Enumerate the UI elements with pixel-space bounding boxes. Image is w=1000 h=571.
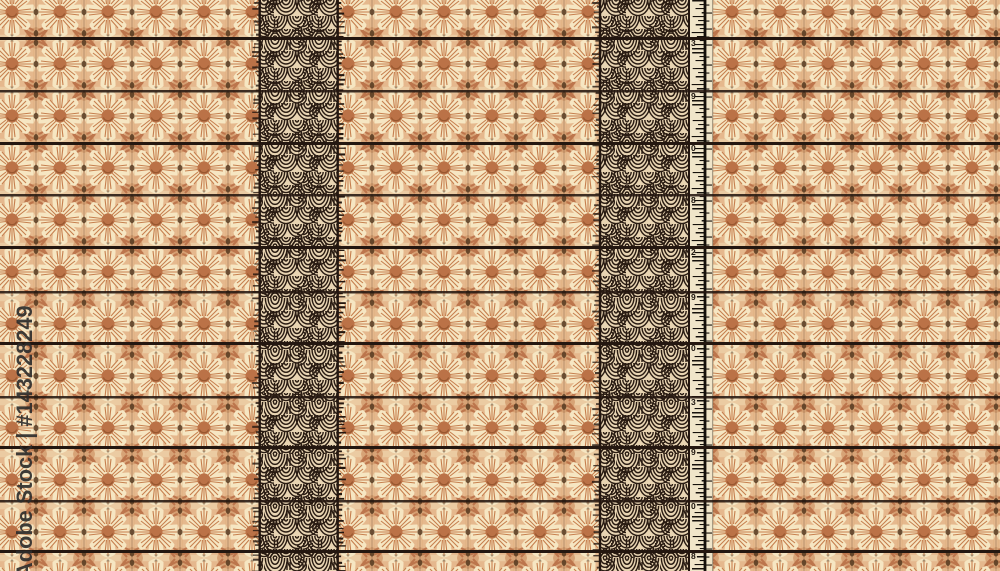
svg-text:Adobe Stock | #143228249: Adobe Stock | #143228249 [12,305,37,571]
